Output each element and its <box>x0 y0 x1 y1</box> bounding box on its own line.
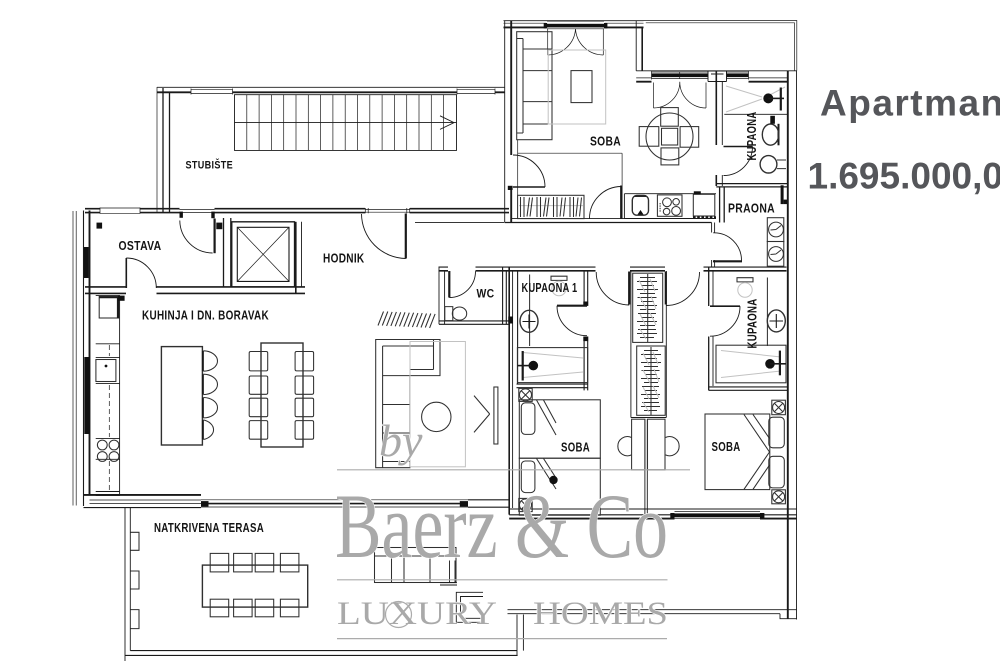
svg-text:NATKRIVENA TERASA: NATKRIVENA TERASA <box>154 520 264 535</box>
svg-text:LUXURY: LUXURY <box>337 596 497 632</box>
svg-text:Baerz & Co: Baerz & Co <box>335 475 668 577</box>
svg-text:SOBA: SOBA <box>590 133 621 148</box>
svg-text:HODNIK: HODNIK <box>323 250 365 265</box>
svg-text:WC: WC <box>477 287 495 301</box>
svg-text:STUBIŠTE: STUBIŠTE <box>186 159 234 172</box>
svg-text:1.695.000,00 €: 1.695.000,00 € <box>808 156 1000 197</box>
svg-text:KUPAONA 1: KUPAONA 1 <box>522 281 578 295</box>
svg-text:OSTAVA: OSTAVA <box>119 238 162 253</box>
svg-text:KUPAONA: KUPAONA <box>744 111 759 160</box>
svg-text:KUHINJA I DN. BORAVAK: KUHINJA I DN. BORAVAK <box>142 308 269 323</box>
svg-text:SOBA: SOBA <box>561 439 590 454</box>
svg-text:PRAONA: PRAONA <box>728 201 775 216</box>
svg-text:KUPAONA: KUPAONA <box>745 298 760 348</box>
svg-text:HOMES: HOMES <box>533 596 668 632</box>
svg-text:SOBA: SOBA <box>712 439 741 454</box>
svg-text:by: by <box>379 415 423 466</box>
svg-text:Apartman: Apartman <box>820 82 1000 123</box>
